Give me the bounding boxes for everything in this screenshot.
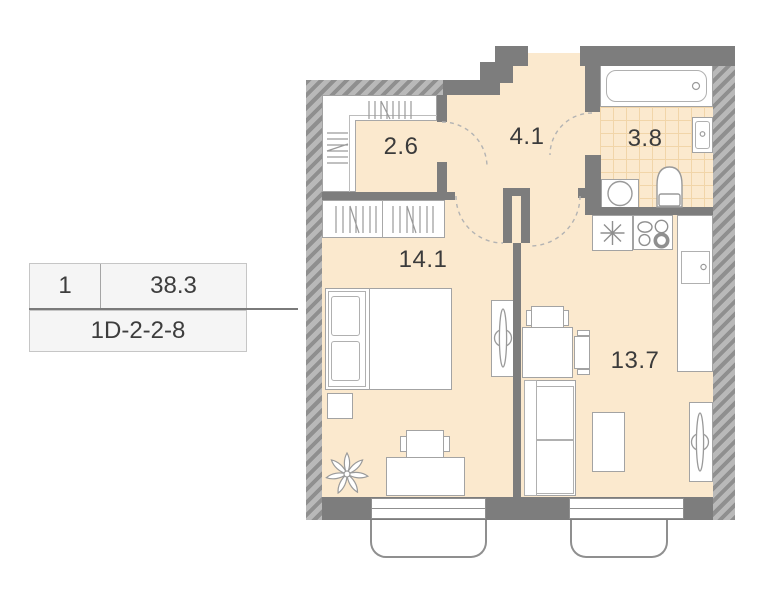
- door-arc-closet: [442, 122, 487, 167]
- room-label-closet: 2.6: [376, 134, 426, 160]
- unit-card[interactable]: 1 38.3: [29, 263, 247, 309]
- door-arc-living: [530, 196, 580, 246]
- room-label-bathroom: 3.8: [620, 126, 670, 152]
- room-label-hallway: 4.1: [502, 124, 552, 150]
- tv-icon: [495, 309, 512, 367]
- bathtub-drain-icon: [693, 83, 700, 90]
- toilet-icon: [657, 167, 682, 207]
- room-label-living: 13.7: [604, 348, 666, 374]
- room-label-bedroom: 14.1: [393, 247, 453, 273]
- door-arc-bedroom: [456, 196, 503, 243]
- sink-drain-icon: [700, 132, 705, 137]
- sink-asterisk-icon: [601, 221, 625, 245]
- unit-code-card[interactable]: 1D-2-2-8: [29, 310, 247, 352]
- unit-code: 1D-2-2-8: [30, 311, 246, 351]
- door-arc-bathroom: [550, 113, 592, 155]
- counter-drain-icon: [701, 264, 706, 269]
- plant-icon: [326, 453, 368, 494]
- unit-total-area: 38.3: [101, 264, 246, 308]
- tv-icon: [692, 413, 709, 471]
- unit-number: 1: [30, 264, 101, 308]
- washer-drum-icon: [608, 182, 632, 206]
- wardrobe-rail-icon: [336, 206, 433, 233]
- stove-burners-icon: [638, 220, 668, 246]
- floorplan-canvas: 1 38.3 1D-2-2-8: [0, 0, 760, 600]
